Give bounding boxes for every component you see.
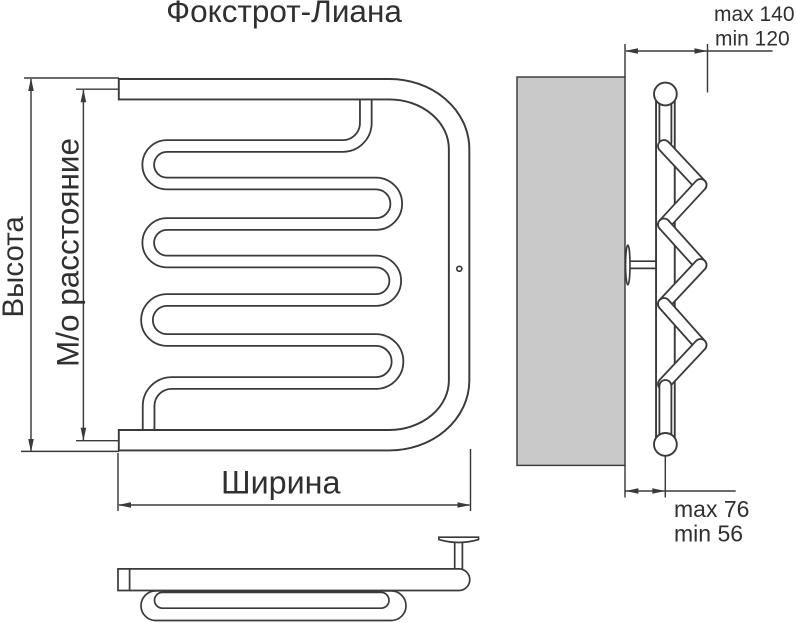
svg-text:Ширина: Ширина [221, 464, 340, 500]
svg-text:max 76: max 76 [674, 496, 749, 522]
svg-text:min 120: min 120 [715, 28, 790, 51]
svg-text:min 56: min 56 [674, 521, 743, 547]
svg-text:М/о расстояние: М/о расстояние [50, 138, 86, 367]
svg-text:max 140: max 140 [714, 3, 795, 26]
svg-text:Высота: Высота [0, 216, 30, 318]
svg-text:Фокстрот-Лиана: Фокстрот-Лиана [166, 0, 402, 29]
